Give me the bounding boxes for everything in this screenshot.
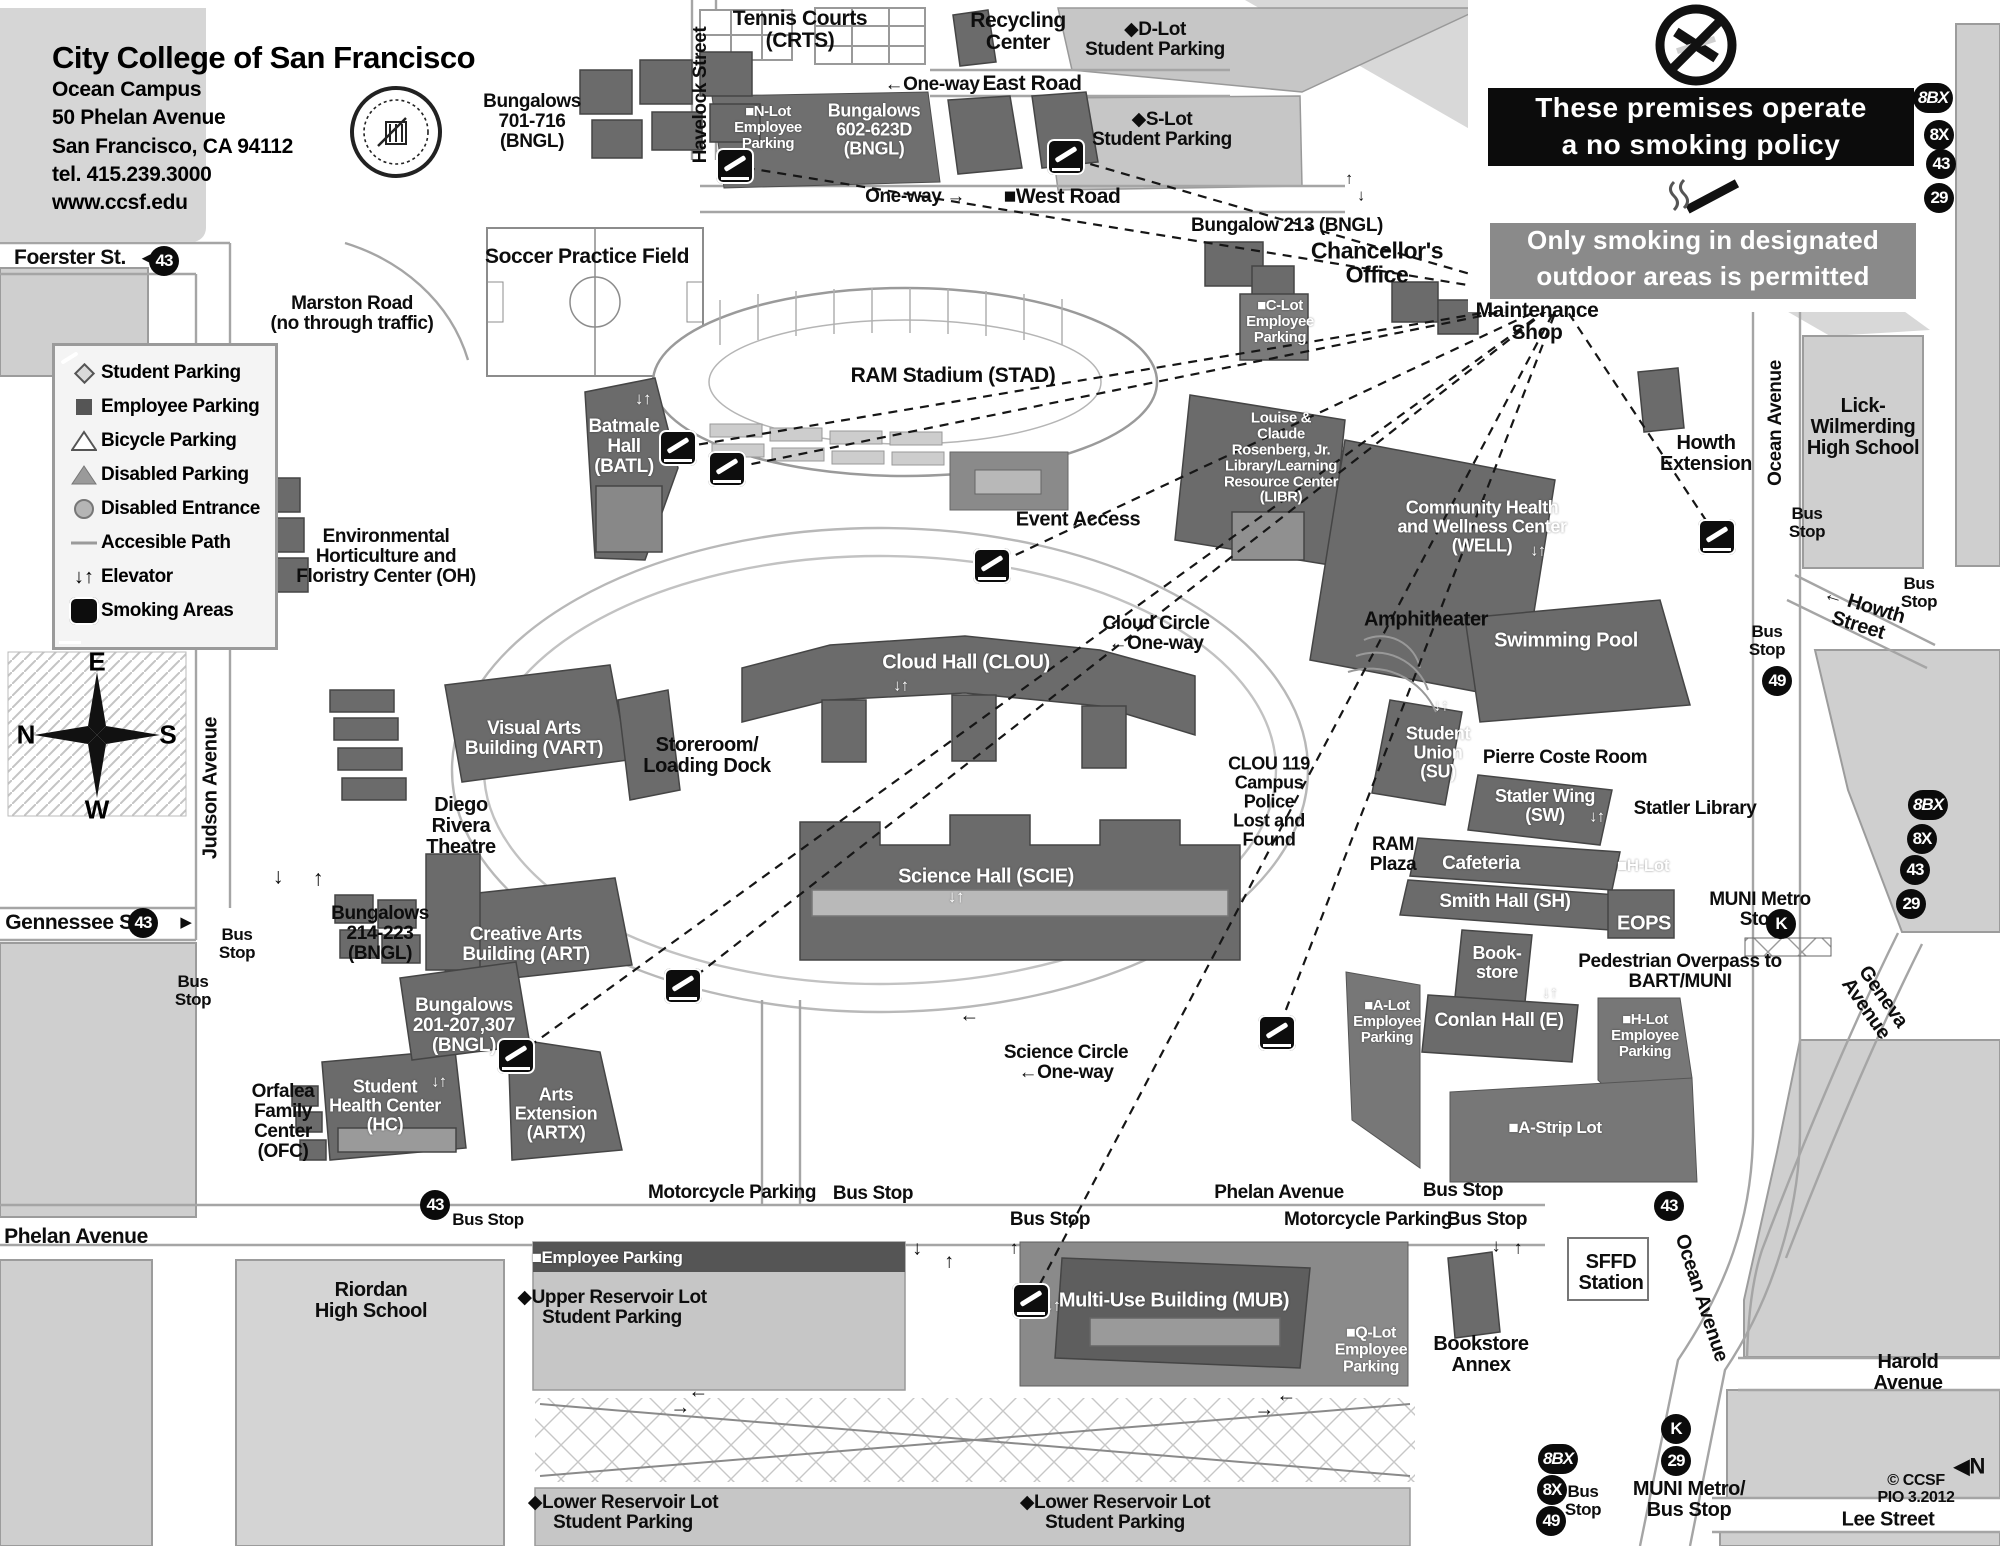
map-label-elev-sw: ↓↑ bbox=[1589, 810, 1604, 827]
map-label-ram-plaza: RAM Plaza bbox=[1370, 835, 1417, 875]
smoking-area-icon-5 bbox=[973, 548, 1011, 584]
map-label-elev-su: ↓↑ bbox=[1433, 699, 1448, 716]
map-label-arr-jd: ↓ bbox=[273, 864, 284, 887]
map-label-ocean-avenue-2: Ocean Avenue bbox=[1670, 1232, 1731, 1365]
map-label-bus-stop-49: Bus Stop bbox=[1749, 623, 1785, 659]
smoking-area-icon-7 bbox=[664, 968, 702, 1004]
map-label-event-access: Event Access bbox=[1016, 509, 1141, 530]
map-label-orfalea: Orfalea Family Center (OFC) bbox=[252, 1082, 315, 1163]
map-label-bus-stop-b5: Bus Stop bbox=[1447, 1210, 1527, 1230]
map-label-science-circle: Science Circle ←One-way bbox=[1004, 1043, 1128, 1083]
map-label-arr-chanc-dn: ↓ bbox=[1357, 189, 1365, 206]
map-label-oneway-west: One-way → bbox=[865, 187, 965, 207]
map-label-tennis: Tennis Courts (CRTS) bbox=[733, 8, 867, 53]
map-label-elev-cloud: ↓↑ bbox=[893, 679, 908, 696]
map-label-arr-d2: ↓ bbox=[1492, 1236, 1501, 1255]
map-labels-layer: Foerster St.◄Tennis Courts (CRTS)Recycli… bbox=[0, 0, 2000, 1546]
map-label-marston-road: Marston Road (no through traffic) bbox=[271, 294, 434, 334]
map-label-d-lot: ◆D-Lot Student Parking bbox=[1085, 20, 1225, 60]
map-label-c-lot: ■C-Lot Employee Parking bbox=[1246, 298, 1314, 346]
map-label-east-road: East Road bbox=[982, 73, 1081, 95]
map-label-geneva-avenue: Geneva Avenue bbox=[1821, 939, 1928, 1067]
map-label-judson-avenue: Judson Avenue bbox=[200, 717, 221, 859]
map-label-arr-chanc-up: ↑ bbox=[1345, 172, 1353, 189]
map-label-arts-extension: Arts Extension (ARTX) bbox=[515, 1085, 597, 1142]
map-label-havelock-street: Havelock Street bbox=[691, 27, 711, 164]
map-label-west-road: ■West Road bbox=[1004, 186, 1121, 208]
smoking-area-icon-9 bbox=[1012, 1283, 1050, 1319]
route-badge-29: 29 bbox=[1924, 183, 1954, 213]
route-badge-8bx: 8BX bbox=[1913, 83, 1953, 113]
map-label-lee-street: Lee Street bbox=[1842, 1509, 1935, 1530]
smoking-area-icon-10 bbox=[1258, 1015, 1296, 1051]
map-label-moto-parking-2: Motorcycle Parking bbox=[1284, 1210, 1452, 1230]
map-label-muni-metro-bottom: MUNI Metro/ Bus Stop bbox=[1633, 1479, 1745, 1521]
map-label-eops: EOPS bbox=[1617, 913, 1671, 934]
route-badge-29: 29 bbox=[1896, 889, 1926, 919]
map-label-amphitheater: Amphitheater bbox=[1364, 609, 1488, 630]
map-label-oneway-east: ←One-way bbox=[885, 75, 980, 95]
map-label-storeroom: Storeroom/ Loading Dock bbox=[643, 735, 770, 777]
map-label-arr-l2: ← bbox=[688, 1381, 708, 1402]
map-label-arr-r1: → bbox=[1254, 1399, 1274, 1420]
route-badge-k: K bbox=[1766, 909, 1796, 939]
map-label-bus-stop-r2: Bus Stop bbox=[1901, 575, 1937, 611]
map-label-statler-wing: Statler Wing (SW) bbox=[1495, 787, 1595, 825]
map-label-bus-stop-b4: Bus Stop bbox=[1010, 1210, 1090, 1230]
map-label-bung-701: Bungalows 701-716 (BNGL) bbox=[483, 92, 581, 152]
map-label-q-lot: ■Q-Lot Employee Parking bbox=[1335, 1326, 1407, 1377]
map-label-arr-d1: ↓ bbox=[912, 1238, 922, 1259]
map-label-h-lot-1: ■H-Lot bbox=[1617, 857, 1669, 875]
map-label-harold-avenue: Harold Avenue bbox=[1862, 1352, 1954, 1394]
route-badge-43: 43 bbox=[1900, 855, 1930, 885]
map-label-bung-213: Bungalow 213 (BNGL) bbox=[1191, 216, 1383, 236]
map-label-swimming-pool: Swimming Pool bbox=[1494, 630, 1638, 651]
map-label-foerster: Foerster St. bbox=[14, 247, 126, 269]
route-badge-43: 43 bbox=[149, 246, 179, 276]
route-badge-43: 43 bbox=[420, 1190, 450, 1220]
map-label-statler-library: Statler Library bbox=[1634, 799, 1757, 819]
map-label-batmale-hall: Batmale Hall (BATL) bbox=[588, 417, 659, 477]
route-badge-8bx: 8BX bbox=[1538, 1444, 1578, 1474]
smoking-area-icon-2 bbox=[1047, 139, 1085, 175]
map-label-soccer-field: Soccer Practice Field bbox=[485, 246, 689, 268]
map-label-bung-602: Bungalows 602-623D (BNGL) bbox=[828, 101, 920, 158]
map-label-lower-reservoir-1: ◆Lower Reservoir Lot Student Parking bbox=[528, 1493, 718, 1533]
map-label-bookstore-annex: Bookstore Annex bbox=[1433, 1334, 1528, 1376]
route-badge-43: 43 bbox=[128, 908, 158, 938]
map-label-map-credit: © CCSF PIO 3.2012 bbox=[1874, 1473, 1958, 1507]
route-badge-43: 43 bbox=[1926, 149, 1956, 179]
route-badge-43: 43 bbox=[1654, 1191, 1684, 1221]
map-label-ocean-avenue-1: Ocean Avenue bbox=[1766, 360, 1786, 486]
map-label-smith-hall: Smith Hall (SH) bbox=[1439, 892, 1570, 912]
map-label-bus-stop-b3: Bus Stop bbox=[452, 1211, 523, 1229]
map-label-bus-stop-l2: Bus Stop bbox=[175, 973, 211, 1009]
map-label-cloud-circle: Cloud Circle ←One-way bbox=[1102, 614, 1209, 654]
map-label-elev-batmale: ↓↑ bbox=[635, 390, 651, 408]
map-label-a-lot: ■A-Lot Employee Parking bbox=[1353, 998, 1421, 1046]
map-label-lick-wilmerding: Lick- Wilmerding High School bbox=[1807, 396, 1919, 460]
map-label-cafeteria: Cafeteria bbox=[1442, 854, 1520, 874]
map-label-moto-parking-1: Motorcycle Parking bbox=[648, 1183, 816, 1203]
map-label-env-horticulture: Environmental Horticulture and Floristry… bbox=[296, 527, 476, 587]
map-label-arr-u2: ↑ bbox=[1010, 1238, 1019, 1257]
map-label-bung-214: Bungalows 214-223 (BNGL) bbox=[331, 904, 429, 964]
map-label-elev-hc: ↓↑ bbox=[431, 1075, 446, 1092]
map-label-elev-conlan: ↓↑ bbox=[1542, 986, 1557, 1003]
map-label-elev-sci: ↓↑ bbox=[948, 888, 964, 906]
route-badge-49: 49 bbox=[1536, 1506, 1566, 1536]
map-label-arr-gennessee: ▶ bbox=[180, 915, 191, 931]
map-label-bus-stop-b1: Bus Stop bbox=[833, 1184, 913, 1204]
map-label-upper-reservoir: ◆Upper Reservoir Lot Student Parking bbox=[517, 1288, 706, 1328]
route-badge-k: K bbox=[1661, 1414, 1691, 1444]
map-label-clou-119: CLOU 119 Campus Police Lost and Found bbox=[1228, 754, 1310, 849]
map-label-bus-stop-l1: Bus Stop bbox=[219, 926, 255, 962]
smoking-area-icon-8 bbox=[497, 1038, 535, 1074]
map-label-phelan-2: Phelan Avenue bbox=[1214, 1183, 1344, 1203]
map-label-elev-well: ↓↑ bbox=[1530, 544, 1545, 561]
route-badge-8x: 8X bbox=[1537, 1475, 1567, 1505]
map-label-cloud-hall: Cloud Hall (CLOU) bbox=[882, 652, 1050, 673]
map-label-mub: Multi-Use Building (MUB) bbox=[1059, 1290, 1289, 1311]
map-label-h-lot-2: ■H-Lot Employee Parking bbox=[1611, 1012, 1679, 1060]
map-label-sffd-station: SFFD Station bbox=[1579, 1252, 1644, 1294]
map-label-phelan-1: Phelan Avenue bbox=[4, 1226, 148, 1248]
map-label-maintenance-shop: Maintenance Shop bbox=[1476, 300, 1599, 345]
map-label-bus-stop-b2: Bus Stop bbox=[1423, 1181, 1503, 1201]
map-label-library: Louise & Claude Rosenberg, Jr. Library/L… bbox=[1224, 410, 1338, 505]
route-badge-29: 29 bbox=[1661, 1446, 1691, 1476]
map-label-bus-stop-r1: Bus Stop bbox=[1789, 505, 1825, 541]
map-label-s-lot: ◆S-Lot Student Parking bbox=[1092, 110, 1232, 150]
map-label-lower-reservoir-2: ◆Lower Reservoir Lot Student Parking bbox=[1020, 1493, 1210, 1533]
smoking-area-icon-1 bbox=[716, 148, 754, 184]
campus-map: City College of San Francisco Ocean Camp… bbox=[0, 0, 2000, 1546]
map-label-visual-arts: Visual Arts Building (VART) bbox=[465, 719, 603, 759]
map-label-riordan: Riordan High School bbox=[315, 1280, 427, 1322]
map-label-ram-stadium: RAM Stadium (STAD) bbox=[851, 365, 1056, 387]
map-label-recycling: Recycling Center bbox=[970, 10, 1066, 55]
smoking-area-icon-4 bbox=[708, 451, 746, 487]
map-label-arr-l1: ← bbox=[1276, 1385, 1296, 1406]
route-badge-49: 49 bbox=[1762, 666, 1792, 696]
map-label-arr-scicircle: ← bbox=[959, 1005, 979, 1026]
map-label-ped-overpass: Pedestrian Overpass to BART/MUNI bbox=[1578, 952, 1781, 992]
map-label-arr-u3: ↑ bbox=[1514, 1238, 1523, 1257]
map-label-employee-parking-band: ■Employee Parking bbox=[532, 1249, 683, 1267]
route-badge-8bx: 8BX bbox=[1908, 790, 1948, 820]
map-label-arr-r2: → bbox=[670, 1397, 690, 1418]
map-label-diego-rivera: Diego Rivera Theatre bbox=[426, 795, 495, 859]
map-label-chancellors-office: Chancellor's Office bbox=[1311, 239, 1443, 288]
map-label-pierre-coste: Pierre Coste Room bbox=[1483, 748, 1647, 768]
map-label-science-hall: Science Hall (SCIE) bbox=[898, 866, 1074, 887]
route-badge-8x: 8X bbox=[1907, 824, 1937, 854]
map-label-student-union: Student Union (SU) bbox=[1406, 724, 1470, 781]
map-label-creative-arts: Creative Arts Building (ART) bbox=[462, 925, 589, 965]
map-label-arr-ju: ↑ bbox=[313, 866, 324, 889]
map-label-health-center: Student Health Center (HC) bbox=[329, 1077, 441, 1134]
map-label-gennessee: Gennessee St. bbox=[5, 912, 145, 934]
map-label-book-store: Book- store bbox=[1473, 944, 1522, 982]
map-label-arr-u1: ↑ bbox=[944, 1251, 954, 1272]
map-label-conlan-hall: Conlan Hall (E) bbox=[1434, 1011, 1563, 1031]
map-label-bus-stop-br: Bus Stop bbox=[1565, 1483, 1601, 1519]
smoking-area-icon-6 bbox=[1698, 519, 1736, 555]
map-label-howth-extension: Howth Extension bbox=[1660, 433, 1752, 475]
map-label-a-strip-lot: ■A-Strip Lot bbox=[1508, 1119, 1601, 1137]
smoking-area-icon-3 bbox=[659, 430, 697, 466]
map-label-n-lot: ■N-Lot Employee Parking bbox=[734, 104, 802, 152]
route-badge-8x: 8X bbox=[1924, 120, 1954, 150]
